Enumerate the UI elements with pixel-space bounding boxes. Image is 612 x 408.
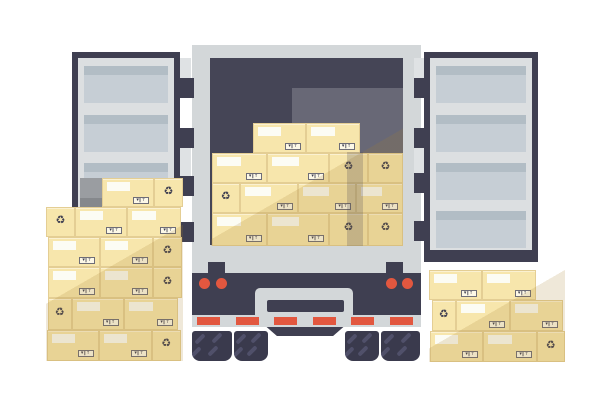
shipping-symbols: ▾‖↑ — [462, 351, 478, 358]
box-label — [488, 335, 512, 344]
shipping-symbols: ▾‖↑ — [461, 290, 477, 297]
shipping-symbols: ▾‖↑ — [542, 321, 558, 328]
shipping-symbols: ▾‖↑ — [489, 321, 505, 328]
cardboard-box: ♻ — [537, 331, 565, 362]
truck-loading-illustration: ▾‖↑▾‖↑▾‖↑▾‖↑♻♻♻▾‖↑▾‖↑▾‖↑▾‖↑▾‖↑♻♻▾‖↑♻♻▾‖↑… — [0, 0, 612, 408]
right-box-stack: ▾‖↑▾‖↑♻▾‖↑▾‖↑▾‖↑▾‖↑♻ — [0, 0, 612, 408]
shipping-symbols: ▾‖↑ — [516, 351, 532, 358]
cardboard-box: ▾‖↑ — [429, 270, 482, 300]
recycle-icon: ♻ — [546, 339, 556, 350]
box-label — [515, 304, 538, 313]
box-label — [435, 335, 458, 344]
cardboard-box: ▾‖↑ — [483, 331, 537, 362]
recycle-icon: ♻ — [439, 308, 449, 319]
shipping-symbols: ▾‖↑ — [515, 290, 531, 297]
cardboard-box: ♻ — [432, 300, 457, 331]
cardboard-box: ▾‖↑ — [456, 300, 510, 331]
cardboard-box: ▾‖↑ — [510, 300, 563, 331]
box-label — [434, 274, 457, 283]
box-label — [461, 304, 485, 313]
cardboard-box: ▾‖↑ — [430, 331, 483, 362]
cardboard-box: ▾‖↑ — [482, 270, 536, 300]
box-label — [487, 274, 511, 283]
